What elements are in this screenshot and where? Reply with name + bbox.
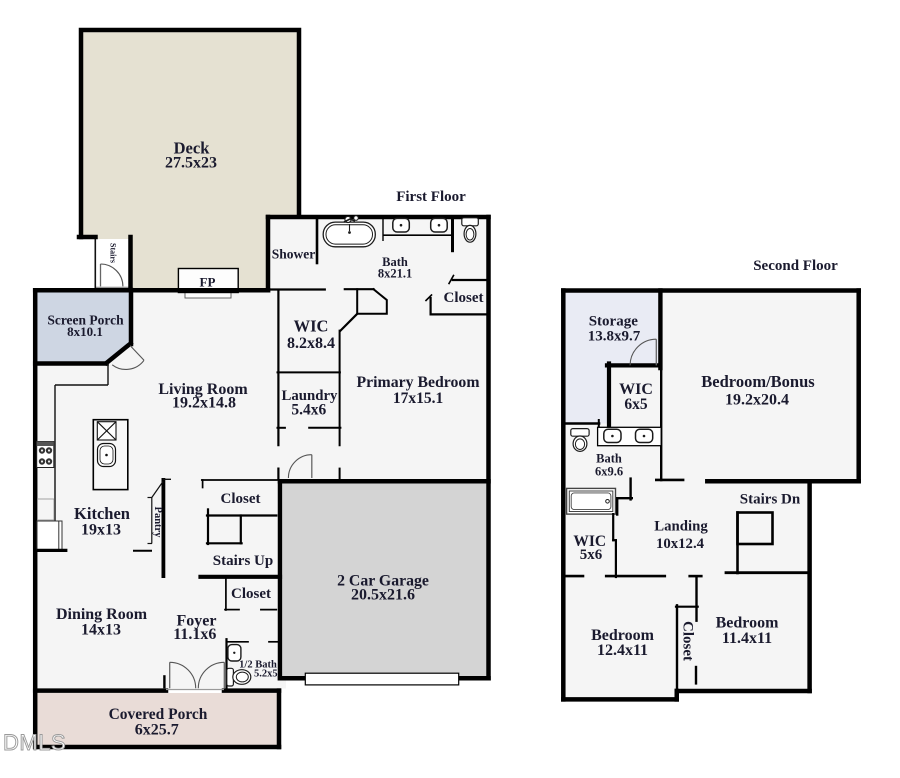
svg-text:6x25.7: 6x25.7	[135, 721, 179, 738]
svg-text:8.2x8.4: 8.2x8.4	[287, 335, 335, 352]
svg-text:5x6: 5x6	[580, 547, 603, 563]
svg-text:12.4x11: 12.4x11	[597, 642, 648, 659]
svg-text:10x12.4: 10x12.4	[656, 536, 705, 552]
svg-text:Stairs: Stairs	[109, 243, 118, 263]
svg-text:WIC: WIC	[294, 317, 329, 336]
svg-text:Storage: Storage	[589, 314, 638, 330]
svg-text:Kitchen: Kitchen	[74, 504, 130, 523]
svg-text:5.2x5: 5.2x5	[254, 669, 278, 680]
svg-text:27.5x23: 27.5x23	[165, 155, 217, 172]
svg-text:FP: FP	[200, 275, 216, 290]
svg-text:Dining Room: Dining Room	[56, 606, 148, 623]
svg-text:19.2x20.4: 19.2x20.4	[725, 392, 789, 409]
svg-text:DMLS: DMLS	[3, 730, 66, 755]
svg-text:Closet: Closet	[231, 586, 271, 602]
svg-text:8x21.1: 8x21.1	[378, 267, 412, 281]
svg-text:Closet: Closet	[680, 621, 696, 661]
svg-text:11.4x11: 11.4x11	[722, 630, 772, 647]
svg-text:Bedroom/Bonus: Bedroom/Bonus	[701, 372, 815, 391]
svg-text:Stairs Up: Stairs Up	[213, 553, 273, 569]
svg-text:Covered Porch: Covered Porch	[109, 706, 208, 723]
svg-text:13.8x9.7: 13.8x9.7	[588, 329, 641, 345]
svg-text:19x13: 19x13	[81, 522, 121, 539]
svg-text:8x10.1: 8x10.1	[67, 324, 103, 339]
svg-text:Bedroom: Bedroom	[716, 615, 779, 632]
svg-text:Closet: Closet	[221, 491, 261, 507]
svg-text:Second Floor: Second Floor	[753, 258, 838, 274]
svg-text:Landing: Landing	[654, 519, 708, 535]
svg-text:Pantry: Pantry	[152, 507, 163, 539]
svg-text:11.1x6: 11.1x6	[173, 626, 216, 643]
svg-text:17x15.1: 17x15.1	[393, 390, 443, 407]
svg-text:Closet: Closet	[444, 290, 484, 306]
svg-text:6x5: 6x5	[624, 396, 648, 413]
svg-text:14x13: 14x13	[81, 622, 121, 639]
svg-text:20.5x21.6: 20.5x21.6	[351, 587, 415, 604]
svg-text:19.2x14.8: 19.2x14.8	[172, 395, 236, 412]
svg-text:Bath: Bath	[596, 452, 622, 466]
svg-text:First Floor: First Floor	[396, 189, 466, 205]
svg-text:6x9.6: 6x9.6	[595, 465, 623, 479]
svg-text:Shower: Shower	[272, 247, 316, 262]
svg-text:Primary Bedroom: Primary Bedroom	[357, 374, 480, 391]
svg-text:Stairs Dn: Stairs Dn	[740, 492, 801, 508]
svg-text:5.4x6: 5.4x6	[291, 402, 326, 419]
